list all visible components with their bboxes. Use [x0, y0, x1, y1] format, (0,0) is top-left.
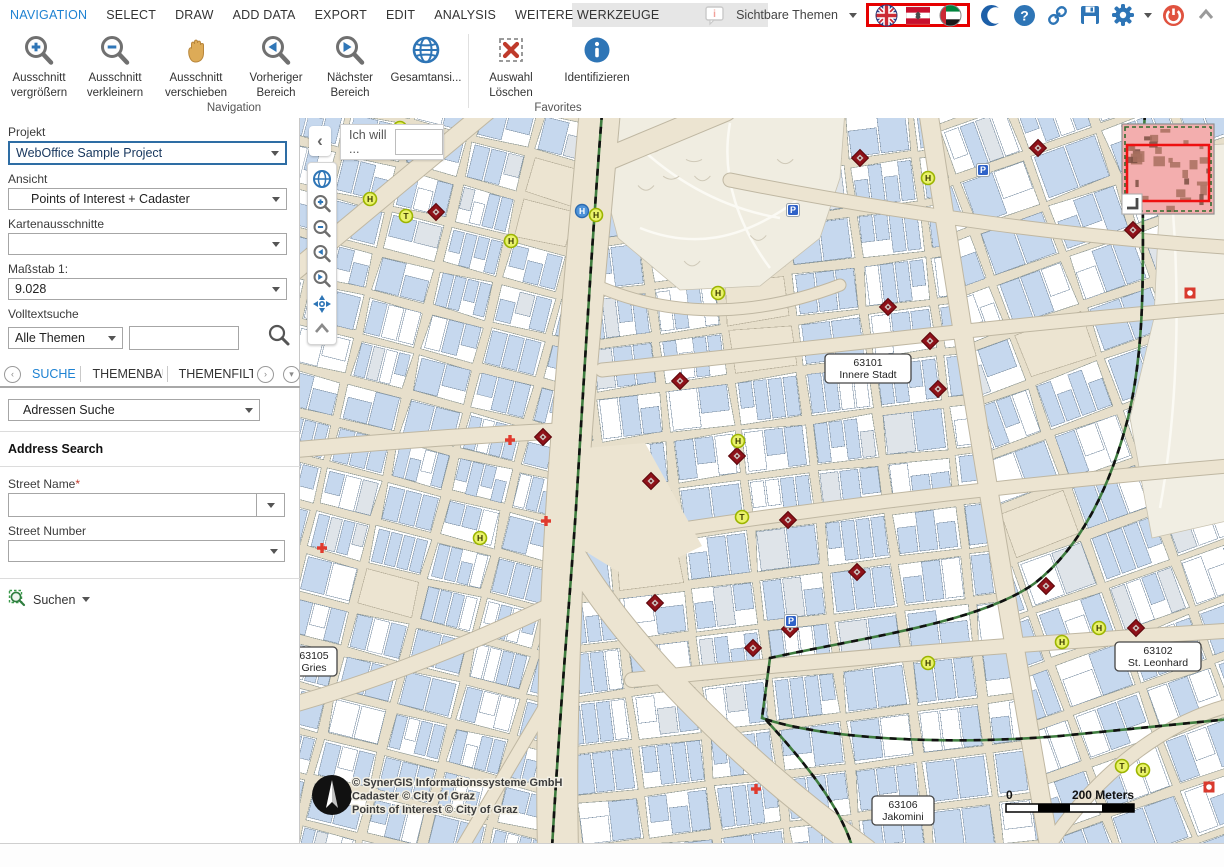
poi-marker-p[interactable]: P	[785, 615, 798, 628]
map-center-position-icon[interactable]	[309, 291, 335, 316]
tab-separator	[80, 366, 81, 382]
poi-marker-p[interactable]: P	[977, 164, 990, 177]
collapse-panel-chevron-icon[interactable]: ‹	[309, 126, 331, 156]
zoom-in-extent-button[interactable]: Ausschnittvergrößern	[2, 32, 76, 101]
prev-extent-icon	[258, 34, 294, 68]
language-flags-highlight-box	[866, 3, 970, 27]
street-name-label: Street Name*	[8, 477, 299, 491]
suchen-button[interactable]: Suchen	[8, 589, 299, 610]
chevron-down-icon	[108, 336, 116, 341]
fulltext-scope-select[interactable]: Alle Themen	[8, 327, 123, 349]
previous-extent-button[interactable]: VorherigerBereich	[238, 32, 314, 101]
north-arrow-logo	[312, 775, 352, 815]
svg-text:H: H	[367, 194, 373, 204]
project-select[interactable]: WebOffice Sample Project	[8, 141, 287, 165]
ich-will-label: Ich will ...	[349, 128, 389, 156]
map-zoom-in-icon[interactable]	[309, 191, 335, 216]
map-credits: Points of Interest © City of Graz	[352, 804, 518, 816]
chevron-down-icon	[267, 503, 275, 508]
tab-themenbaum[interactable]: THEMENBAUM	[85, 367, 162, 381]
button-label: verschieben	[165, 87, 227, 99]
svg-text:H: H	[508, 236, 514, 246]
scale-value: 9.028	[15, 282, 46, 296]
share-link-icon[interactable]	[1045, 3, 1069, 27]
full-extent-globe-icon	[408, 34, 444, 68]
map-next-extent-icon[interactable]	[309, 266, 335, 291]
chevron-down-icon	[272, 197, 280, 202]
poi-marker-hb[interactable]: H	[576, 205, 589, 218]
fulltext-scope-value: Alle Themen	[15, 331, 85, 345]
visible-themes-label[interactable]: Sichtbare Themen	[736, 8, 838, 22]
ich-will-input[interactable]	[395, 129, 443, 155]
overview-globe-icon[interactable]	[309, 166, 335, 191]
fulltext-search-input[interactable]	[129, 326, 239, 350]
help-icon[interactable]: ?	[1012, 3, 1036, 27]
svg-text:P: P	[790, 205, 796, 215]
uk-flag-icon[interactable]	[874, 3, 898, 27]
menu-tab-add-data[interactable]: ADD DATA	[233, 8, 296, 22]
menu-tab-navigation[interactable]: NAVIGATION	[10, 8, 87, 22]
identify-icon	[579, 34, 615, 68]
button-label: Vorheriger	[249, 72, 302, 84]
street-name-text: Street Name	[8, 477, 75, 491]
poi-marker-h[interactable]: H	[1137, 764, 1150, 777]
search-template-select[interactable]: Adressen Suche	[8, 399, 260, 421]
button-label: verkleinern	[87, 87, 143, 99]
poi-marker-star[interactable]	[1204, 782, 1215, 793]
svg-text:63106: 63106	[888, 799, 917, 811]
volltextsuche-label: Volltextsuche	[8, 307, 299, 321]
ansicht-label: Ansicht	[8, 172, 299, 186]
zoom-out-icon	[97, 34, 133, 68]
menu-tab-export[interactable]: EXPORT	[315, 8, 367, 22]
tab-themenfilter[interactable]: THEMENFILTER	[172, 367, 253, 381]
svg-text:H: H	[925, 658, 931, 668]
menu-tab-draw[interactable]: DRAW	[175, 8, 214, 22]
toolbar-collapse-chevron-icon[interactable]	[309, 316, 335, 341]
settings-caret-icon[interactable]	[1144, 13, 1152, 18]
next-extent-icon	[332, 34, 368, 68]
chevron-down-icon	[272, 242, 280, 247]
svg-text:0: 0	[1006, 788, 1013, 802]
svg-text:H: H	[925, 173, 931, 183]
button-label: Ausschnitt	[169, 72, 222, 84]
menu-tabs: NAVIGATION SELECT DRAW ADD DATA EXPORT E…	[10, 0, 659, 30]
austria-flag-icon[interactable]	[906, 3, 930, 27]
poi-marker-h[interactable]: H	[922, 172, 935, 185]
svg-text:H: H	[593, 210, 599, 220]
street-number-label: Street Number	[8, 524, 299, 538]
button-label: Ausschnitt	[88, 72, 141, 84]
search-template-value: Adressen Suche	[15, 403, 115, 417]
clear-selection-button[interactable]: AuswahlLöschen	[471, 32, 551, 101]
view-select[interactable]: Points of Interest + Cadaster	[8, 188, 287, 210]
button-label: Löschen	[489, 87, 532, 99]
menu-bar: NAVIGATION SELECT DRAW ADD DATA EXPORT E…	[0, 0, 1224, 31]
svg-text:Innere Stadt: Innere Stadt	[839, 369, 896, 381]
visible-themes-caret-icon[interactable]	[849, 13, 857, 18]
poi-marker-t[interactable]: T	[400, 210, 413, 223]
poi-marker-t[interactable]: T	[1116, 760, 1129, 773]
overview-map-inset[interactable]	[1122, 124, 1214, 214]
svg-text:?: ?	[1020, 7, 1029, 23]
address-search-title: Address Search	[8, 442, 299, 456]
poi-marker-h[interactable]: H	[590, 209, 603, 222]
poi-marker-h[interactable]: H	[1093, 622, 1106, 635]
street-name-dropdown-button[interactable]	[256, 493, 285, 517]
street-number-select[interactable]	[8, 540, 285, 562]
svg-text:200 Meters: 200 Meters	[1072, 788, 1134, 802]
menu-tab-analysis[interactable]: ANALYSIS	[434, 8, 496, 22]
clear-selection-icon	[493, 34, 529, 68]
save-icon[interactable]	[1078, 3, 1102, 27]
logout-power-icon[interactable]	[1161, 3, 1185, 27]
overview-toggle-button[interactable]	[1122, 194, 1142, 214]
tab-separator	[167, 366, 168, 382]
svg-text:Jakomini: Jakomini	[882, 811, 923, 823]
tab-suchen[interactable]: SUCHEN	[25, 367, 76, 381]
map-viewport[interactable]: HHHHHHHHHHHHTTTHPPP63101Innere Stadt6310…	[300, 118, 1224, 843]
svg-text:63102: 63102	[1143, 645, 1172, 657]
chevron-down-icon	[272, 287, 280, 292]
chevron-down-icon	[271, 151, 279, 156]
sidebar-panel: Projekt WebOffice Sample Project Ansicht…	[0, 118, 300, 866]
district-label: 63102St. Leonhard	[1115, 642, 1201, 671]
svg-text:P: P	[788, 616, 794, 626]
button-label: Auswahl	[489, 72, 532, 84]
poi-marker-h[interactable]: H	[712, 287, 725, 300]
identify-button[interactable]: Identifizieren	[551, 32, 643, 86]
collapse-ribbon-chevron-icon[interactable]	[1194, 3, 1218, 27]
chevron-down-icon	[270, 549, 278, 554]
view-value: Points of Interest + Cadaster	[31, 192, 190, 206]
required-asterisk: *	[75, 477, 80, 491]
svg-text:H: H	[477, 533, 483, 543]
scale-select[interactable]: 9.028	[8, 278, 287, 300]
menu-tab-weitere-werkzeuge[interactable]: WEITERE WERKZEUGE	[515, 8, 659, 22]
svg-text:H: H	[1140, 765, 1146, 775]
zoom-out-extent-button[interactable]: Ausschnittverkleinern	[76, 32, 154, 101]
status-footer	[0, 843, 1224, 867]
chevron-down-icon	[82, 597, 90, 602]
map-extent-select[interactable]	[8, 233, 287, 255]
search-selection-icon	[8, 589, 26, 610]
next-extent-button[interactable]: NächsterBereich	[314, 32, 386, 101]
project-value: WebOffice Sample Project	[16, 146, 162, 160]
map-credits: Cadaster © City of Graz	[352, 791, 476, 803]
pan-button[interactable]: Ausschnittverschieben	[154, 32, 238, 101]
projekt-label: Projekt	[8, 125, 299, 139]
ribbon-toolbar: Ausschnittvergrößern Ausschnittverkleine…	[0, 30, 1224, 119]
tab-scroll-left-icon[interactable]: ‹	[4, 366, 21, 383]
ribbon-group-divider	[468, 34, 469, 108]
svg-text:i: i	[713, 9, 716, 20]
svg-text:H: H	[1096, 623, 1102, 633]
tab-overflow-icon[interactable]: ▾	[283, 366, 300, 383]
panel-tab-strip: ‹ SUCHEN THEMENBAUM THEMENFILTER › ▾	[0, 362, 300, 388]
uae-flag-icon[interactable]	[938, 3, 962, 27]
svg-text:T: T	[739, 512, 745, 522]
info-bubble-icon[interactable]: i	[703, 3, 727, 27]
tab-scroll-right-icon[interactable]: ›	[257, 366, 274, 383]
pan-hand-icon	[178, 34, 214, 68]
svg-text:H: H	[735, 436, 741, 446]
full-extent-button[interactable]: Gesamtansi...	[386, 32, 466, 86]
map-toolbar	[307, 162, 337, 345]
svg-text:St. Leonhard: St. Leonhard	[1128, 657, 1188, 669]
poi-marker-h[interactable]: H	[1056, 636, 1069, 649]
map-credits: © SynerGIS Informationssysteme GmbH	[352, 777, 562, 789]
map-zoom-out-icon[interactable]	[309, 216, 335, 241]
button-label: vergrößern	[11, 87, 67, 99]
ich-will-search-box[interactable]: Ich will ...	[340, 124, 444, 160]
district-label: 63101Innere Stadt	[825, 354, 911, 383]
poi-marker-star[interactable]	[1185, 288, 1196, 299]
district-label: 63106Jakomini	[872, 796, 934, 825]
button-label: Gesamtansi...	[391, 72, 462, 84]
poi-marker-p[interactable]: P	[787, 204, 800, 217]
map-prev-extent-icon[interactable]	[309, 241, 335, 266]
button-label: Ausschnitt	[12, 72, 65, 84]
svg-text:H: H	[715, 288, 721, 298]
svg-text:P: P	[980, 165, 986, 175]
settings-gear-icon[interactable]	[1111, 3, 1135, 27]
kartenausschnitte-label: Kartenausschnitte	[8, 217, 299, 231]
menu-tab-select[interactable]: SELECT	[106, 8, 156, 22]
button-label: Bereich	[257, 87, 296, 99]
district-label: 63105Gries	[300, 647, 337, 676]
svg-text:T: T	[1119, 761, 1125, 771]
zoom-in-icon	[21, 34, 57, 68]
massstab-label: Maßstab 1:	[8, 262, 299, 276]
night-mode-moon-icon[interactable]	[979, 3, 1003, 27]
street-name-input[interactable]	[8, 493, 256, 517]
svg-text:T: T	[403, 211, 409, 221]
poi-marker-h[interactable]: H	[732, 435, 745, 448]
button-label: Bereich	[331, 87, 370, 99]
map-canvas[interactable]: HHHHHHHHHHHHTTTHPPP63101Innere Stadt6310…	[300, 118, 1224, 843]
svg-text:Gries: Gries	[301, 662, 326, 674]
poi-marker-h[interactable]: H	[922, 657, 935, 670]
button-label: Nächster	[327, 72, 373, 84]
chevron-down-icon	[245, 408, 253, 413]
svg-text:63105: 63105	[300, 650, 329, 662]
poi-marker-h[interactable]: H	[364, 193, 377, 206]
menu-tab-edit[interactable]: EDIT	[386, 8, 415, 22]
svg-text:H: H	[579, 206, 585, 216]
poi-marker-h[interactable]: H	[474, 532, 487, 545]
svg-text:63101: 63101	[853, 357, 882, 369]
poi-marker-h[interactable]: H	[505, 235, 518, 248]
svg-text:H: H	[1059, 637, 1065, 647]
ribbon-group-label-navigation: Navigation	[0, 102, 468, 114]
button-label: Identifizieren	[564, 72, 629, 84]
poi-marker-t[interactable]: T	[736, 511, 749, 524]
fulltext-search-icon[interactable]	[267, 323, 291, 352]
ribbon-group-label-favorites: Favorites	[470, 102, 646, 114]
suchen-label: Suchen	[33, 593, 75, 607]
